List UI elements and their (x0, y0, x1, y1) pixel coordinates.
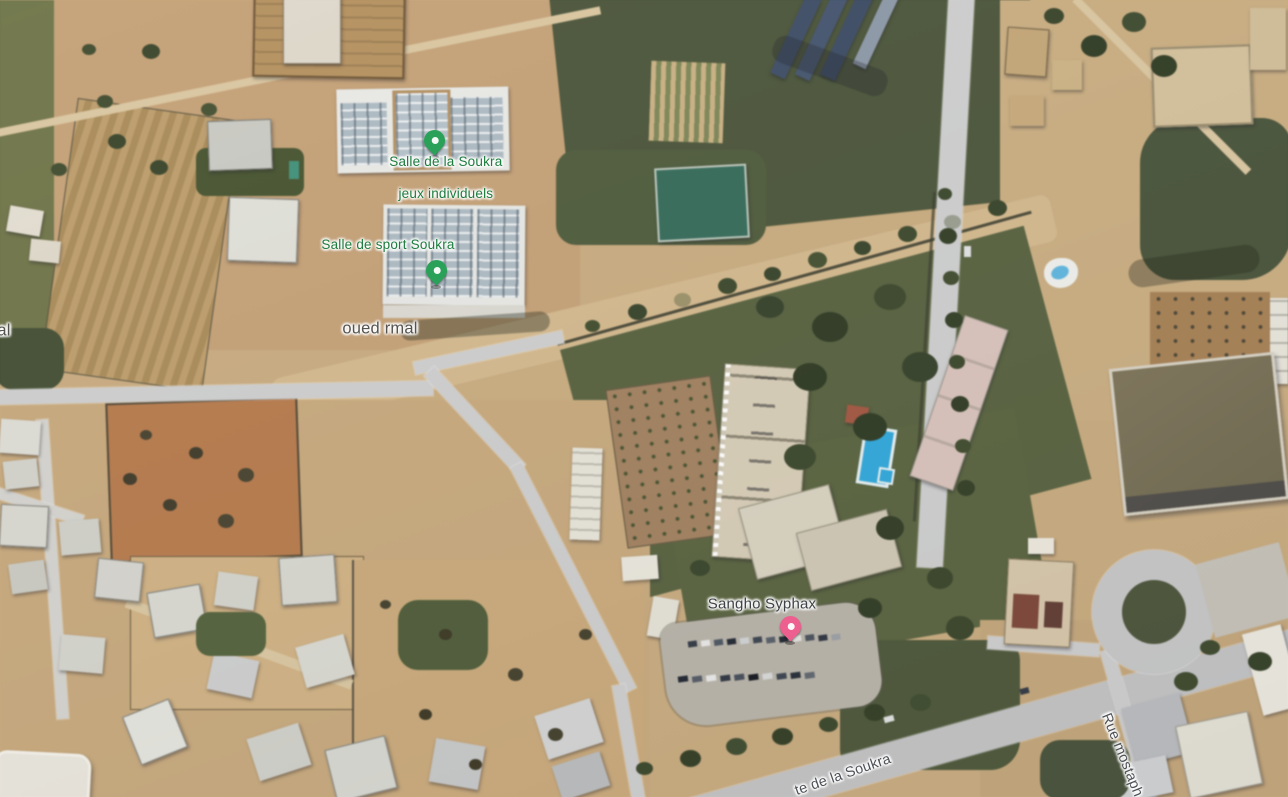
road-label-rue-mostapha: Rue mostaph (1098, 711, 1146, 797)
waterway-label-oued-rmal: oued rmal (342, 320, 417, 339)
poi-label-salle-de-la-soukra[interactable]: Salle de la Soukra jeux individuels (366, 138, 503, 218)
poi-label-line1: Salle de la Soukra (389, 154, 502, 169)
hotel-pin-pink-icon[interactable] (776, 612, 806, 642)
hotel-label-sangho-syphax[interactable]: Sangho Syphax (708, 596, 817, 613)
road-label-route-de-la-soukra: te de la Soukra (793, 751, 893, 797)
waterway-label-partial: al (0, 322, 11, 341)
poi-label-salle-de-sport-soukra[interactable]: Salle de sport Soukra (321, 237, 454, 253)
poi-pin-green-icon[interactable] (422, 256, 452, 286)
satellite-map[interactable]: Salle de la Soukra jeux individuels Sall… (0, 0, 1288, 797)
poi-label-line2: jeux individuels (398, 186, 493, 201)
map-labels-layer: Salle de la Soukra jeux individuels Sall… (0, 0, 1288, 797)
